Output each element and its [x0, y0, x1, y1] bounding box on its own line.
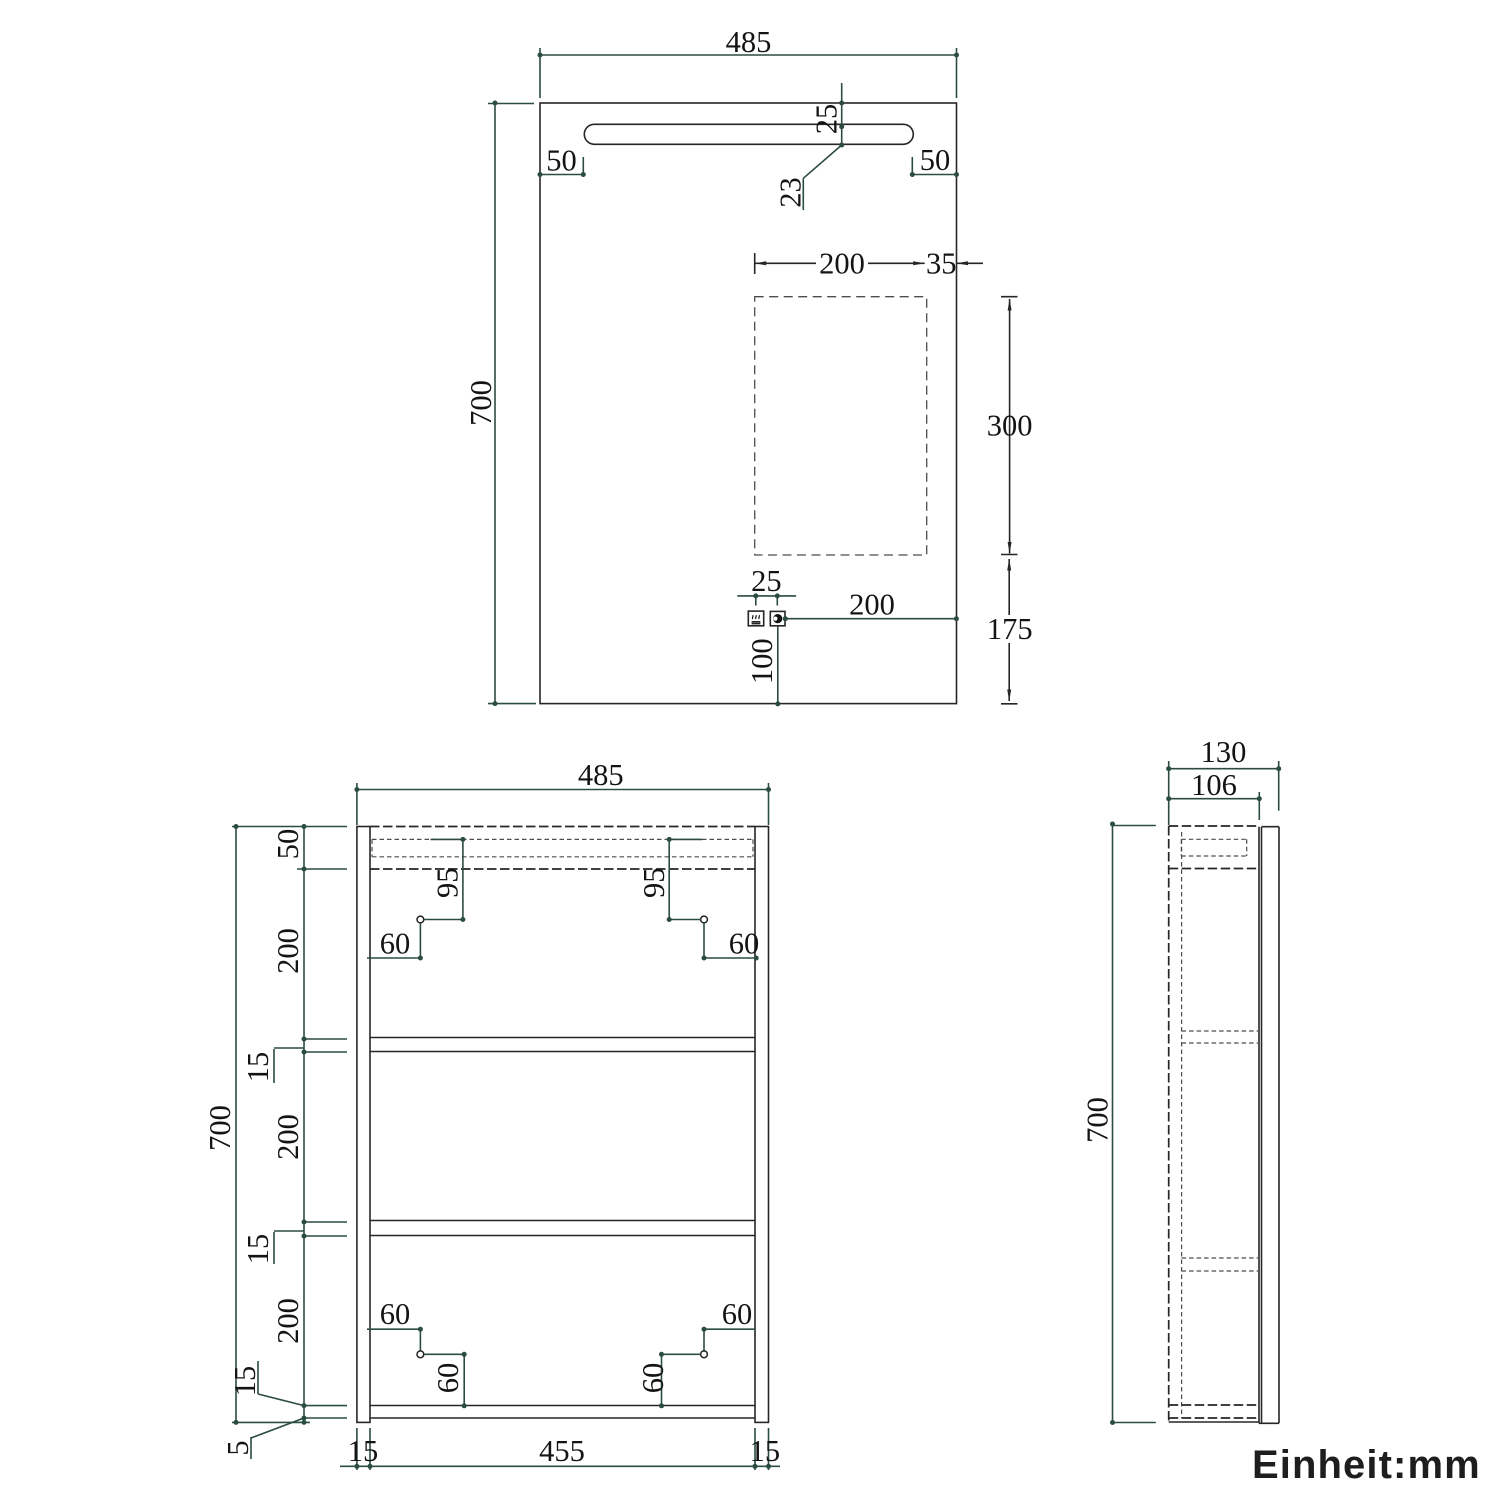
svg-text:60: 60	[722, 1297, 753, 1331]
svg-text:95: 95	[430, 868, 464, 899]
svg-text:455: 455	[539, 1434, 585, 1468]
svg-text:60: 60	[431, 1363, 465, 1394]
svg-text:25: 25	[810, 104, 844, 135]
svg-text:15: 15	[750, 1434, 781, 1468]
svg-text:200: 200	[271, 928, 305, 974]
svg-text:23: 23	[774, 177, 808, 208]
svg-text:175: 175	[987, 612, 1033, 646]
svg-text:200: 200	[849, 588, 895, 622]
svg-text:60: 60	[729, 927, 760, 961]
svg-text:15: 15	[348, 1434, 379, 1468]
svg-text:15: 15	[241, 1234, 275, 1265]
svg-text:200: 200	[271, 1298, 305, 1344]
svg-text:15: 15	[228, 1366, 262, 1397]
svg-text:200: 200	[271, 1114, 305, 1160]
svg-text:700: 700	[203, 1105, 237, 1151]
svg-text:60: 60	[380, 1297, 411, 1331]
svg-text:485: 485	[578, 758, 624, 792]
svg-text:130: 130	[1201, 735, 1247, 769]
svg-text:106: 106	[1191, 768, 1237, 802]
svg-text:50: 50	[271, 829, 305, 860]
svg-text:60: 60	[636, 1363, 670, 1394]
svg-text:700: 700	[1081, 1097, 1115, 1143]
svg-text:5: 5	[221, 1440, 255, 1455]
svg-text:700: 700	[464, 380, 498, 426]
svg-text:15: 15	[241, 1052, 275, 1083]
svg-text:100: 100	[745, 638, 779, 684]
svg-text:60: 60	[380, 927, 411, 961]
svg-text:50: 50	[920, 143, 951, 177]
svg-text:95: 95	[637, 868, 671, 899]
svg-text:300: 300	[987, 409, 1033, 443]
svg-text:200: 200	[819, 247, 865, 281]
svg-text:25: 25	[751, 564, 782, 598]
svg-text:485: 485	[726, 25, 772, 59]
svg-text:50: 50	[546, 144, 577, 178]
svg-text:35: 35	[926, 247, 957, 281]
svg-text:Einheit:mm: Einheit:mm	[1252, 1443, 1481, 1487]
